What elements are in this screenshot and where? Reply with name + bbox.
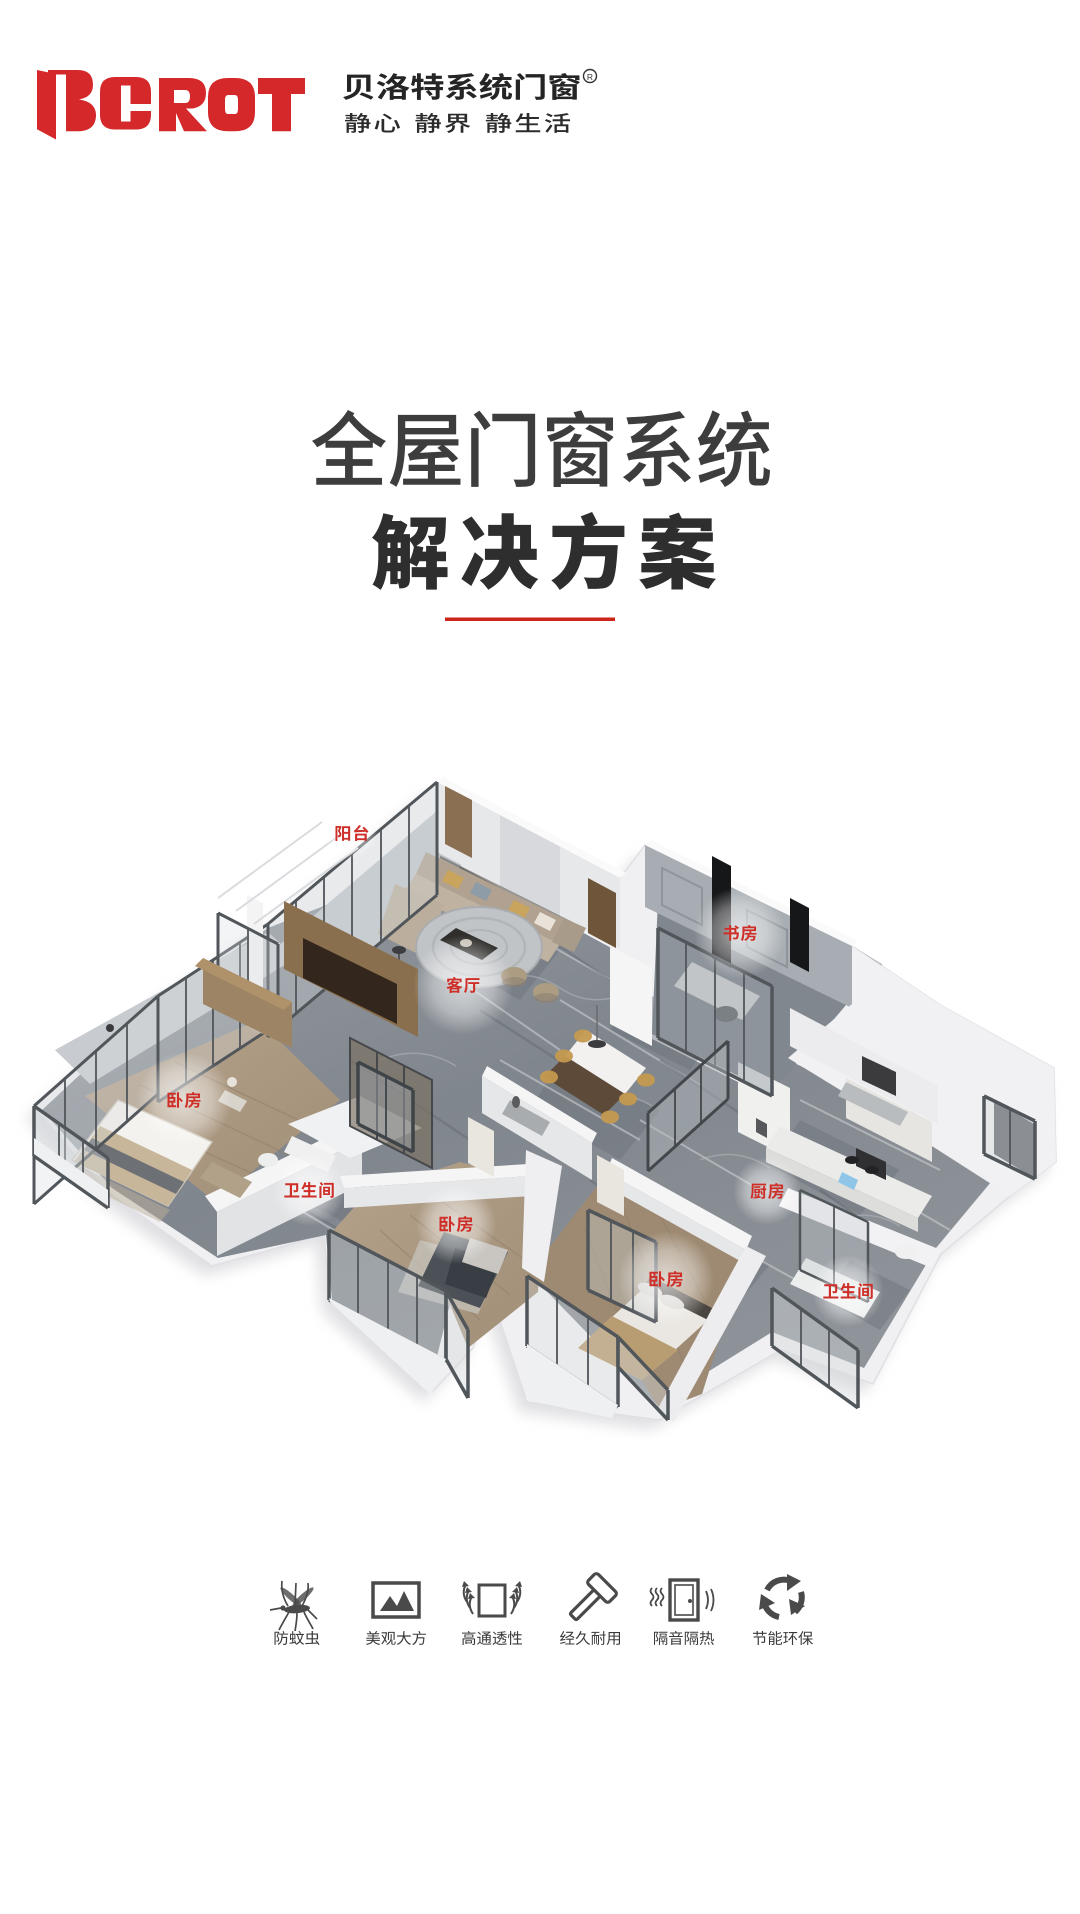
svg-text:R: R — [587, 72, 593, 82]
